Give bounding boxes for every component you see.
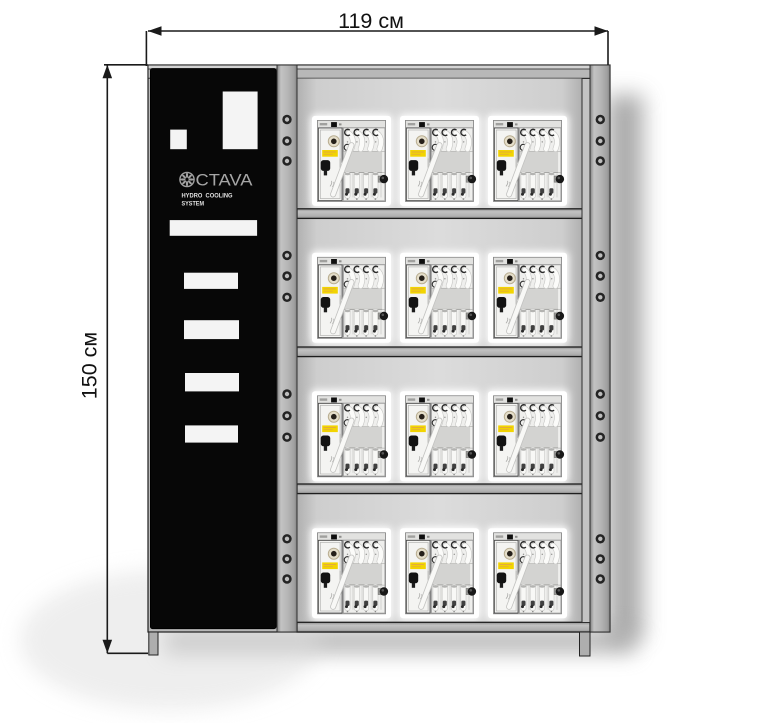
svg-text:119 см: 119 см (338, 9, 404, 33)
svg-text:SYSTEM: SYSTEM (182, 200, 205, 207)
svg-text:CTAVA: CTAVA (196, 171, 254, 190)
svg-text:150 см: 150 см (78, 332, 102, 399)
svg-text:HYDRO COOLING: HYDRO COOLING (182, 193, 233, 200)
